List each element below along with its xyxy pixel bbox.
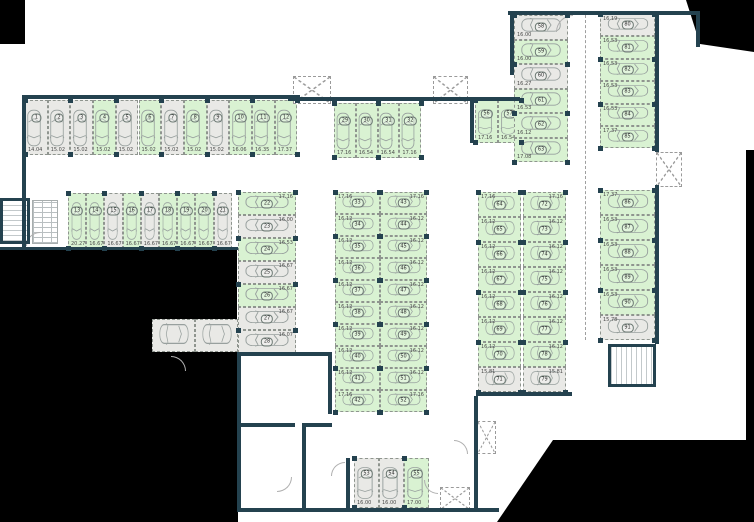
outside-mask bbox=[0, 0, 25, 44]
column-dot bbox=[598, 146, 603, 151]
parking-space-52[interactable]: 5217.16 bbox=[380, 390, 427, 412]
space-area-label: 16.12 bbox=[410, 282, 424, 288]
space-number: 1 bbox=[32, 113, 41, 122]
space-number: 8 bbox=[191, 113, 200, 122]
space-number: 11 bbox=[257, 113, 269, 122]
space-area-label: 17.16 bbox=[478, 135, 492, 141]
parking-space-89[interactable]: 8916.53 bbox=[600, 265, 655, 290]
parking-space-80[interactable]: 8016.19 bbox=[600, 14, 655, 36]
space-number: 40 bbox=[351, 353, 363, 362]
parking-space-12[interactable]: 1217.37 bbox=[275, 100, 298, 155]
space-number: 29 bbox=[339, 116, 351, 125]
space-number: 7 bbox=[168, 113, 177, 122]
parking-space-8[interactable]: 815.02 bbox=[184, 100, 207, 155]
space-number: 37 bbox=[351, 287, 363, 296]
space-number: 51 bbox=[397, 375, 409, 384]
space-area-label: 16.12 bbox=[549, 319, 563, 325]
column-dot bbox=[352, 505, 357, 510]
column-dot bbox=[333, 278, 338, 283]
space-area-label: 16.06 bbox=[232, 147, 246, 153]
parking-space-50[interactable]: 5016.12 bbox=[380, 346, 427, 368]
space-area-label: 15.81 bbox=[481, 369, 495, 375]
parking-space-66[interactable]: 6616.12 bbox=[478, 242, 521, 267]
parking-space-53[interactable]: 5316.00 bbox=[354, 458, 379, 508]
column-dot bbox=[652, 288, 657, 293]
space-area-label: 16.12 bbox=[549, 244, 563, 250]
parking-space-20[interactable]: 2016.67 bbox=[195, 193, 213, 249]
space-area-label: 16.53 bbox=[603, 83, 617, 89]
space-area-label: 16.12 bbox=[410, 326, 424, 332]
space-area-label: 17.00 bbox=[407, 500, 421, 506]
space-number: 74 bbox=[538, 250, 550, 259]
parking-space-6[interactable]: 615.02 bbox=[139, 100, 162, 155]
space-number: 56 bbox=[480, 110, 492, 119]
space-area-label: 16.12 bbox=[517, 130, 531, 136]
column-dot bbox=[476, 390, 481, 395]
column-dot bbox=[473, 140, 478, 145]
space-number: 50 bbox=[397, 353, 409, 362]
parking-space-37[interactable]: 3716.12 bbox=[335, 280, 380, 302]
space-number: 26 bbox=[261, 291, 273, 300]
column-dot bbox=[175, 246, 180, 251]
column-dot bbox=[563, 290, 568, 295]
space-number: 76 bbox=[538, 300, 550, 309]
parking-space-26[interactable]: 2616.67 bbox=[238, 284, 296, 307]
column-dot bbox=[66, 246, 71, 251]
space-number: 69 bbox=[493, 325, 505, 334]
column-dot bbox=[250, 152, 255, 157]
space-number: 91 bbox=[621, 323, 633, 332]
column-dot bbox=[598, 57, 603, 62]
column-dot bbox=[473, 98, 478, 103]
column-dot bbox=[332, 155, 337, 160]
space-area-label: 15.78 bbox=[603, 317, 617, 323]
parking-space-14[interactable]: 1416.67 bbox=[86, 193, 104, 249]
space-area-label: 17.08 bbox=[517, 154, 531, 160]
parking-space-74[interactable]: 7416.12 bbox=[523, 242, 566, 267]
column-dot bbox=[159, 98, 164, 103]
column-dot bbox=[23, 98, 28, 103]
space-number: 89 bbox=[621, 273, 633, 282]
space-number: 3 bbox=[77, 113, 86, 122]
space-area-label: 16.53 bbox=[603, 292, 617, 298]
column-dot bbox=[175, 191, 180, 196]
space-number: 46 bbox=[397, 265, 409, 274]
space-number: 58 bbox=[535, 23, 547, 32]
parking-space-35[interactable]: 3516.12 bbox=[335, 236, 380, 258]
parking-space-71[interactable]: 7115.81 bbox=[478, 367, 521, 392]
space-area-label: 17.16 bbox=[410, 392, 424, 398]
space-area-label: 16.53 bbox=[279, 240, 293, 246]
column-dot bbox=[295, 152, 300, 157]
column-dot bbox=[102, 191, 107, 196]
column-dot bbox=[205, 152, 210, 157]
space-number: 65 bbox=[493, 225, 505, 234]
space-area-label: 17.16 bbox=[402, 150, 416, 156]
space-number: 2 bbox=[54, 113, 63, 122]
parking-space[interactable] bbox=[152, 319, 195, 352]
column-dot bbox=[402, 456, 407, 461]
column-dot bbox=[521, 190, 526, 195]
parking-space-82[interactable]: 8216.53 bbox=[600, 59, 655, 81]
column-dot bbox=[102, 246, 107, 251]
space-number: 35 bbox=[351, 243, 363, 252]
column-dot bbox=[424, 278, 429, 283]
space-area-label: 16.00 bbox=[279, 217, 293, 223]
parking-space-70[interactable]: 7016.12 bbox=[478, 342, 521, 367]
column-dot bbox=[512, 160, 517, 165]
column-dot bbox=[652, 338, 657, 343]
column-dot bbox=[293, 236, 298, 241]
space-area-label: 16.00 bbox=[517, 56, 531, 62]
parking-space-9[interactable]: 915.02 bbox=[207, 100, 230, 155]
parking-space-36[interactable]: 3616.12 bbox=[335, 258, 380, 280]
parking-space-17[interactable]: 1716.67 bbox=[141, 193, 159, 249]
floor-plan: 114.04215.02315.02415.02515.02615.02715.… bbox=[0, 0, 754, 522]
space-number: 12 bbox=[280, 113, 292, 122]
space-area-label: 16.12 bbox=[549, 344, 563, 350]
parking-space-78[interactable]: 7816.12 bbox=[523, 342, 566, 367]
parking-space-1[interactable]: 114.04 bbox=[25, 100, 48, 155]
lane-marking bbox=[585, 15, 586, 340]
wall-segment bbox=[288, 97, 476, 101]
parking-space-83[interactable]: 8316.53 bbox=[600, 81, 655, 103]
space-number: 54 bbox=[385, 470, 397, 479]
column-dot bbox=[476, 290, 481, 295]
space-number: 4 bbox=[100, 113, 109, 122]
space-number: 24 bbox=[261, 245, 273, 254]
column-dot bbox=[521, 340, 526, 345]
parking-space-30[interactable]: 3016.54 bbox=[356, 103, 378, 158]
space-area-label: 17.16 bbox=[338, 392, 352, 398]
space-area-label: 16.54 bbox=[381, 150, 395, 156]
space-area-label: 15.02 bbox=[73, 147, 87, 153]
column-dot bbox=[652, 102, 657, 107]
parking-space-32[interactable]: 3217.16 bbox=[399, 103, 421, 158]
space-number: 60 bbox=[535, 72, 547, 81]
space-area-label: 16.67 bbox=[279, 309, 293, 315]
parking-space-22[interactable]: 2217.16 bbox=[238, 192, 296, 215]
space-area-label: 15.02 bbox=[187, 147, 201, 153]
space-area-label: 15.02 bbox=[119, 147, 133, 153]
space-area-label: 16.12 bbox=[481, 344, 495, 350]
parking-space-42[interactable]: 4217.16 bbox=[335, 390, 380, 412]
column-dot bbox=[476, 190, 481, 195]
space-number: 70 bbox=[493, 350, 505, 359]
parking-space-64[interactable]: 6417.16 bbox=[478, 192, 521, 217]
parking-space-44[interactable]: 4416.12 bbox=[380, 214, 427, 236]
space-number: 86 bbox=[621, 198, 633, 207]
parking-space-39[interactable]: 3916.12 bbox=[335, 324, 380, 346]
space-number: 22 bbox=[261, 199, 273, 208]
column-dot bbox=[236, 282, 241, 287]
stairs-icon bbox=[608, 344, 656, 387]
parking-space-33[interactable]: 3317.16 bbox=[335, 192, 380, 214]
parking-space-49[interactable]: 4916.12 bbox=[380, 324, 427, 346]
parking-space-21[interactable]: 2116.67 bbox=[214, 193, 232, 249]
parking-space-48[interactable]: 4816.12 bbox=[380, 302, 427, 324]
space-area-label: 16.12 bbox=[410, 370, 424, 376]
parking-space-46[interactable]: 4616.12 bbox=[380, 258, 427, 280]
parking-space-40[interactable]: 4016.12 bbox=[335, 346, 380, 368]
parking-space-19[interactable]: 1916.67 bbox=[177, 193, 195, 249]
parking-space-62[interactable]: 6216.12 bbox=[514, 113, 568, 138]
column-dot bbox=[563, 340, 568, 345]
column-dot bbox=[236, 190, 241, 195]
space-number: 77 bbox=[538, 325, 550, 334]
column-dot bbox=[598, 12, 603, 17]
column-dot bbox=[652, 238, 657, 243]
outside-mask bbox=[0, 250, 237, 319]
column-dot bbox=[424, 190, 429, 195]
parking-space-43[interactable]: 4317.16 bbox=[380, 192, 427, 214]
parking-space-23[interactable]: 2316.00 bbox=[238, 215, 296, 238]
parking-space-81[interactable]: 8116.53 bbox=[600, 36, 655, 58]
space-number: 6 bbox=[145, 113, 154, 122]
parking-space-34[interactable]: 3416.12 bbox=[335, 214, 380, 236]
space-area-label: 16.00 bbox=[382, 500, 396, 506]
column-dot bbox=[139, 191, 144, 196]
parking-space-65[interactable]: 6516.12 bbox=[478, 217, 521, 242]
space-area-label: 17.16 bbox=[549, 194, 563, 200]
parking-space-79[interactable]: 7915.81 bbox=[523, 367, 566, 392]
parking-space-24[interactable]: 2416.53 bbox=[238, 238, 296, 261]
space-number: 25 bbox=[261, 268, 273, 277]
parking-space-31[interactable]: 3116.54 bbox=[378, 103, 400, 158]
space-area-label: 16.54 bbox=[359, 150, 373, 156]
column-dot bbox=[598, 102, 603, 107]
space-area-label: 16.12 bbox=[481, 244, 495, 250]
space-number: 88 bbox=[621, 248, 633, 257]
column-dot bbox=[563, 390, 568, 395]
parking-space-3[interactable]: 315.02 bbox=[70, 100, 93, 155]
space-area-label: 16.12 bbox=[338, 326, 352, 332]
column-dot bbox=[293, 190, 298, 195]
column-dot bbox=[419, 101, 424, 106]
parking-space-29[interactable]: 2917.16 bbox=[334, 103, 356, 158]
parking-space-4[interactable]: 415.02 bbox=[93, 100, 116, 155]
parking-space-28[interactable]: 2816.07 bbox=[238, 330, 296, 353]
column-dot bbox=[521, 390, 526, 395]
space-number: 33 bbox=[351, 199, 363, 208]
space-number: 41 bbox=[351, 375, 363, 384]
space-number: 19 bbox=[180, 207, 192, 216]
space-number: 72 bbox=[538, 200, 550, 209]
parking-space-68[interactable]: 6816.12 bbox=[478, 292, 521, 317]
column-dot bbox=[250, 98, 255, 103]
parking-space-45[interactable]: 4516.12 bbox=[380, 236, 427, 258]
column-dot bbox=[424, 234, 429, 239]
space-area-label: 16.53 bbox=[603, 267, 617, 273]
space-area-label: 15.02 bbox=[96, 147, 110, 153]
wall-segment bbox=[470, 97, 474, 143]
parking-space-56[interactable]: 5617.16 bbox=[475, 100, 498, 143]
space-number: 62 bbox=[535, 121, 547, 130]
space-number: 67 bbox=[493, 275, 505, 284]
space-number: 27 bbox=[261, 314, 273, 323]
space-number: 10 bbox=[234, 113, 246, 122]
space-area-label: 16.12 bbox=[338, 282, 352, 288]
column-dot bbox=[66, 191, 71, 196]
column-dot bbox=[598, 188, 603, 193]
space-area-label: 16.67 bbox=[279, 263, 293, 269]
wall-segment bbox=[237, 352, 241, 510]
column-dot bbox=[114, 152, 119, 157]
column-dot bbox=[565, 111, 570, 116]
parking-space-67[interactable]: 6716.12 bbox=[478, 267, 521, 292]
wall-segment bbox=[508, 11, 700, 15]
column-dot bbox=[424, 366, 429, 371]
space-number: 83 bbox=[621, 88, 633, 97]
space-area-label: 17.16 bbox=[410, 194, 424, 200]
space-area-label: 16.12 bbox=[410, 216, 424, 222]
column-dot bbox=[598, 338, 603, 343]
column-dot bbox=[512, 111, 517, 116]
parking-space-84[interactable]: 8416.53 bbox=[600, 104, 655, 126]
space-area-label: 16.53 bbox=[603, 106, 617, 112]
parking-space-59[interactable]: 5916.00 bbox=[514, 40, 568, 65]
parking-space-5[interactable]: 515.02 bbox=[116, 100, 139, 155]
space-area-label: 16.53 bbox=[603, 217, 617, 223]
parking-space-72[interactable]: 7217.16 bbox=[523, 192, 566, 217]
column-dot bbox=[332, 101, 337, 106]
wall-segment bbox=[237, 352, 332, 356]
parking-space-69[interactable]: 6916.12 bbox=[478, 317, 521, 342]
door-arc bbox=[454, 440, 468, 454]
space-number: 80 bbox=[621, 21, 633, 30]
wall-segment bbox=[696, 11, 700, 47]
column-dot bbox=[424, 322, 429, 327]
space-number: 55 bbox=[410, 470, 422, 479]
wall-segment bbox=[237, 508, 499, 512]
shaft-icon bbox=[477, 421, 496, 454]
space-area-label: 16.53 bbox=[603, 61, 617, 67]
column-dot bbox=[293, 282, 298, 287]
parking-space-91[interactable]: 9115.78 bbox=[600, 315, 655, 340]
space-number: 47 bbox=[397, 287, 409, 296]
column-dot bbox=[565, 160, 570, 165]
column-dot bbox=[236, 236, 241, 241]
parking-space-85[interactable]: 8517.37 bbox=[600, 126, 655, 148]
space-area-label: 16.12 bbox=[410, 304, 424, 310]
parking-space-25[interactable]: 2516.67 bbox=[238, 261, 296, 284]
space-area-label: 15.02 bbox=[210, 147, 224, 153]
car-icon bbox=[201, 321, 232, 350]
column-dot bbox=[159, 152, 164, 157]
space-number: 28 bbox=[261, 337, 273, 346]
column-dot bbox=[236, 328, 241, 333]
space-area-label: 16.12 bbox=[481, 319, 495, 325]
parking-space-60[interactable]: 6016.27 bbox=[514, 64, 568, 89]
space-number: 31 bbox=[382, 116, 394, 125]
space-number: 64 bbox=[493, 200, 505, 209]
space-number: 43 bbox=[397, 199, 409, 208]
parking-space-41[interactable]: 4116.12 bbox=[335, 368, 380, 390]
parking-space-18[interactable]: 1816.67 bbox=[159, 193, 177, 249]
space-number: 36 bbox=[351, 265, 363, 274]
column-dot bbox=[563, 240, 568, 245]
column-dot bbox=[376, 101, 381, 106]
space-area-label: 16.00 bbox=[357, 500, 371, 506]
wall-segment bbox=[22, 95, 26, 247]
space-area-label: 17.16 bbox=[337, 150, 351, 156]
parking-space-10[interactable]: 1016.06 bbox=[229, 100, 252, 155]
parking-space-77[interactable]: 7716.12 bbox=[523, 317, 566, 342]
column-dot bbox=[212, 246, 217, 251]
space-number: 53 bbox=[360, 470, 372, 479]
space-number: 81 bbox=[621, 43, 633, 52]
column-dot bbox=[402, 505, 407, 510]
parking-space-73[interactable]: 7316.12 bbox=[523, 217, 566, 242]
space-number: 59 bbox=[535, 47, 547, 56]
space-area-label: 16.12 bbox=[338, 238, 352, 244]
space-area-label: 16.67 bbox=[279, 286, 293, 292]
parking-space-86[interactable]: 8617.37 bbox=[600, 190, 655, 215]
column-dot bbox=[378, 190, 383, 195]
parking-space-2[interactable]: 215.02 bbox=[48, 100, 71, 155]
parking-space-16[interactable]: 1616.67 bbox=[123, 193, 141, 249]
parking-space-76[interactable]: 7616.12 bbox=[523, 292, 566, 317]
shaft-icon bbox=[440, 487, 470, 510]
parking-space-47[interactable]: 4716.12 bbox=[380, 280, 427, 302]
space-area-label: 17.37 bbox=[603, 128, 617, 134]
column-dot bbox=[476, 240, 481, 245]
column-dot bbox=[476, 340, 481, 345]
parking-space-51[interactable]: 5116.12 bbox=[380, 368, 427, 390]
parking-space-75[interactable]: 7516.12 bbox=[523, 267, 566, 292]
parking-space-38[interactable]: 3816.12 bbox=[335, 302, 380, 324]
space-area-label: 16.12 bbox=[549, 294, 563, 300]
parking-space-88[interactable]: 8816.53 bbox=[600, 240, 655, 265]
space-area-label: 16.27 bbox=[517, 81, 531, 87]
column-dot bbox=[652, 57, 657, 62]
space-area-label: 16.53 bbox=[603, 38, 617, 44]
space-number: 73 bbox=[538, 225, 550, 234]
column-dot bbox=[565, 13, 570, 18]
parking-space[interactable] bbox=[195, 319, 238, 352]
wall-segment bbox=[302, 423, 332, 427]
parking-space-27[interactable]: 2716.67 bbox=[238, 307, 296, 330]
column-dot bbox=[68, 98, 73, 103]
column-dot bbox=[521, 290, 526, 295]
wall-segment bbox=[474, 396, 478, 510]
space-number: 17 bbox=[144, 207, 156, 216]
column-dot bbox=[378, 366, 383, 371]
space-number: 9 bbox=[213, 113, 222, 122]
parking-space-87[interactable]: 8716.53 bbox=[600, 215, 655, 240]
column-dot bbox=[419, 155, 424, 160]
parking-space-90[interactable]: 9016.53 bbox=[600, 290, 655, 315]
space-area-label: 16.12 bbox=[338, 348, 352, 354]
space-area-label: 16.12 bbox=[481, 269, 495, 275]
column-dot bbox=[68, 152, 73, 157]
column-dot bbox=[565, 62, 570, 67]
parking-space-54[interactable]: 5416.00 bbox=[379, 458, 404, 508]
space-area-label: 16.53 bbox=[517, 105, 531, 111]
parking-space-7[interactable]: 715.02 bbox=[161, 100, 184, 155]
parking-space-13[interactable]: 1320.27 bbox=[68, 193, 86, 249]
column-dot bbox=[519, 98, 524, 103]
space-area-label: 14.04 bbox=[28, 147, 42, 153]
parking-space-11[interactable]: 1116.35 bbox=[252, 100, 275, 155]
space-area-label: 17.37 bbox=[278, 147, 292, 153]
space-number: 42 bbox=[351, 397, 363, 406]
space-area-label: 17.16 bbox=[481, 194, 495, 200]
space-number: 32 bbox=[404, 116, 416, 125]
space-number: 20 bbox=[198, 207, 210, 216]
parking-space-15[interactable]: 1516.67 bbox=[104, 193, 122, 249]
space-area-label: 17.37 bbox=[603, 192, 617, 198]
